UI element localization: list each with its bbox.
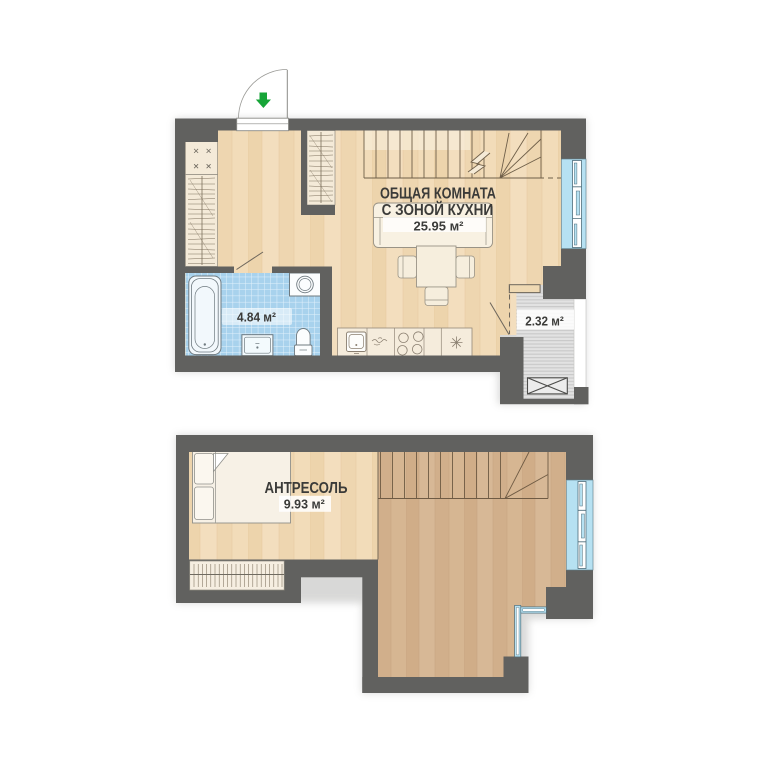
svg-text:ОБЩАЯ КОМНАТА: ОБЩАЯ КОМНАТА <box>380 185 496 202</box>
svg-text:С ЗОНОЙ КУХНИ: С ЗОНОЙ КУХНИ <box>382 201 494 219</box>
svg-text:АНТРЕСОЛЬ: АНТРЕСОЛЬ <box>265 480 348 497</box>
svg-text:25.95 м²: 25.95 м² <box>414 219 464 233</box>
svg-text:2.32 м²: 2.32 м² <box>525 315 564 329</box>
svg-text:9.93 м²: 9.93 м² <box>284 498 325 512</box>
svg-text:4.84 м²: 4.84 м² <box>237 310 276 324</box>
